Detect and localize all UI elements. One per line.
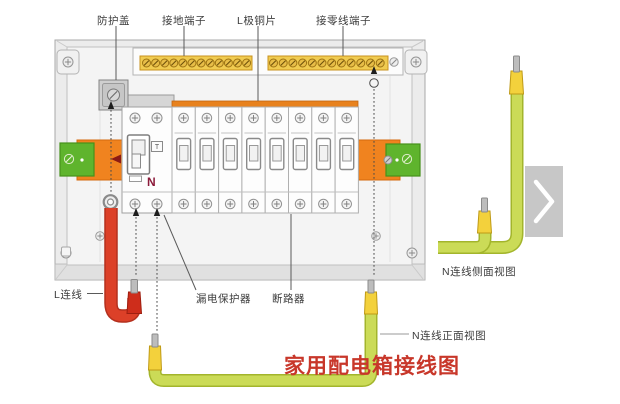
breaker-module <box>242 107 265 213</box>
callout-ground-terminal: 接地端子 <box>162 13 206 28</box>
callout-leakage-protector: 漏电保护器 <box>196 291 251 306</box>
callout-protective-cover: 防护盖 <box>97 13 130 28</box>
breaker-module <box>312 107 335 213</box>
breaker-module <box>219 107 242 213</box>
chevron-right-icon <box>525 166 563 237</box>
callout-l-pole-copper: L极铜片 <box>237 13 276 28</box>
breaker-module <box>265 107 288 213</box>
breaker-module <box>195 107 218 213</box>
breaker-module <box>335 107 358 213</box>
protective-cover <box>99 80 128 110</box>
carousel-next-button[interactable] <box>525 166 563 237</box>
diagram-title: 家用配电箱接线图 <box>284 350 464 380</box>
cable-duct <box>125 95 174 108</box>
terminal-strip <box>133 48 403 75</box>
breaker-module <box>289 107 312 213</box>
callout-neutral-terminal: 接零线端子 <box>316 13 371 28</box>
callout-circuit-breaker: 断路器 <box>272 291 305 306</box>
callout-n-wire-front-view: N连线正面视图 <box>412 328 486 343</box>
ground-block-left <box>60 143 94 176</box>
breaker-module <box>172 107 195 213</box>
callout-l-wire: L连线 <box>54 287 82 302</box>
test-button: T <box>151 141 163 152</box>
wiring-diagram-page: 防护盖 接地端子 L极铜片 接零线端子 L连线 漏电保护器 断路器 N连线侧面视… <box>0 0 620 404</box>
neutral-pole-mark: N <box>147 175 156 189</box>
n-wire-side-view <box>438 56 524 248</box>
callout-n-wire-side-view: N连线侧面视图 <box>442 264 516 279</box>
ground-block-right <box>384 144 420 176</box>
